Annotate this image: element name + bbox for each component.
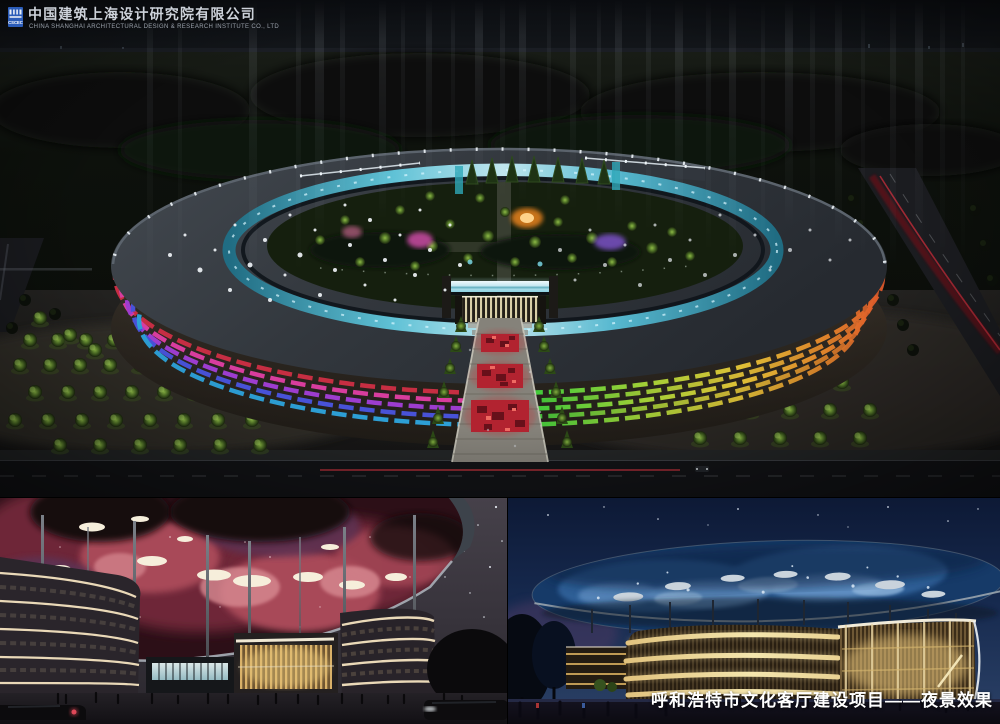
panel-divider-horizontal xyxy=(0,497,1000,498)
vignette xyxy=(0,0,1000,497)
left-building xyxy=(0,557,140,695)
street-view-nebula-canopy-render xyxy=(0,497,508,724)
main-aerial-render xyxy=(0,0,1000,497)
cscec-logo-icon: CSCEC xyxy=(8,7,23,27)
company-header: CSCEC 中国建筑上海设计研究院有限公司 CHINA SHANGHAI ARC… xyxy=(8,7,279,31)
panel-divider-vertical xyxy=(507,497,508,724)
center-right-block xyxy=(234,633,338,695)
company-name-zh: 中国建筑上海设计研究院有限公司 xyxy=(28,7,279,22)
glowing-lobby-glass xyxy=(152,663,228,680)
center-atrium xyxy=(146,657,234,695)
car-right xyxy=(424,700,508,720)
car-left xyxy=(0,705,86,720)
company-name-en: CHINA SHANGHAI ARCHITECTURAL DESIGN & RE… xyxy=(29,24,279,31)
project-caption: 呼和浩特市文化客厅建设项目——夜景效果 xyxy=(651,686,993,711)
right-building xyxy=(340,609,436,701)
presentation-board: CSCEC 中国建筑上海设计研究院有限公司 CHINA SHANGHAI ARC… xyxy=(0,0,1000,724)
logo-text: CSCEC xyxy=(8,20,23,25)
